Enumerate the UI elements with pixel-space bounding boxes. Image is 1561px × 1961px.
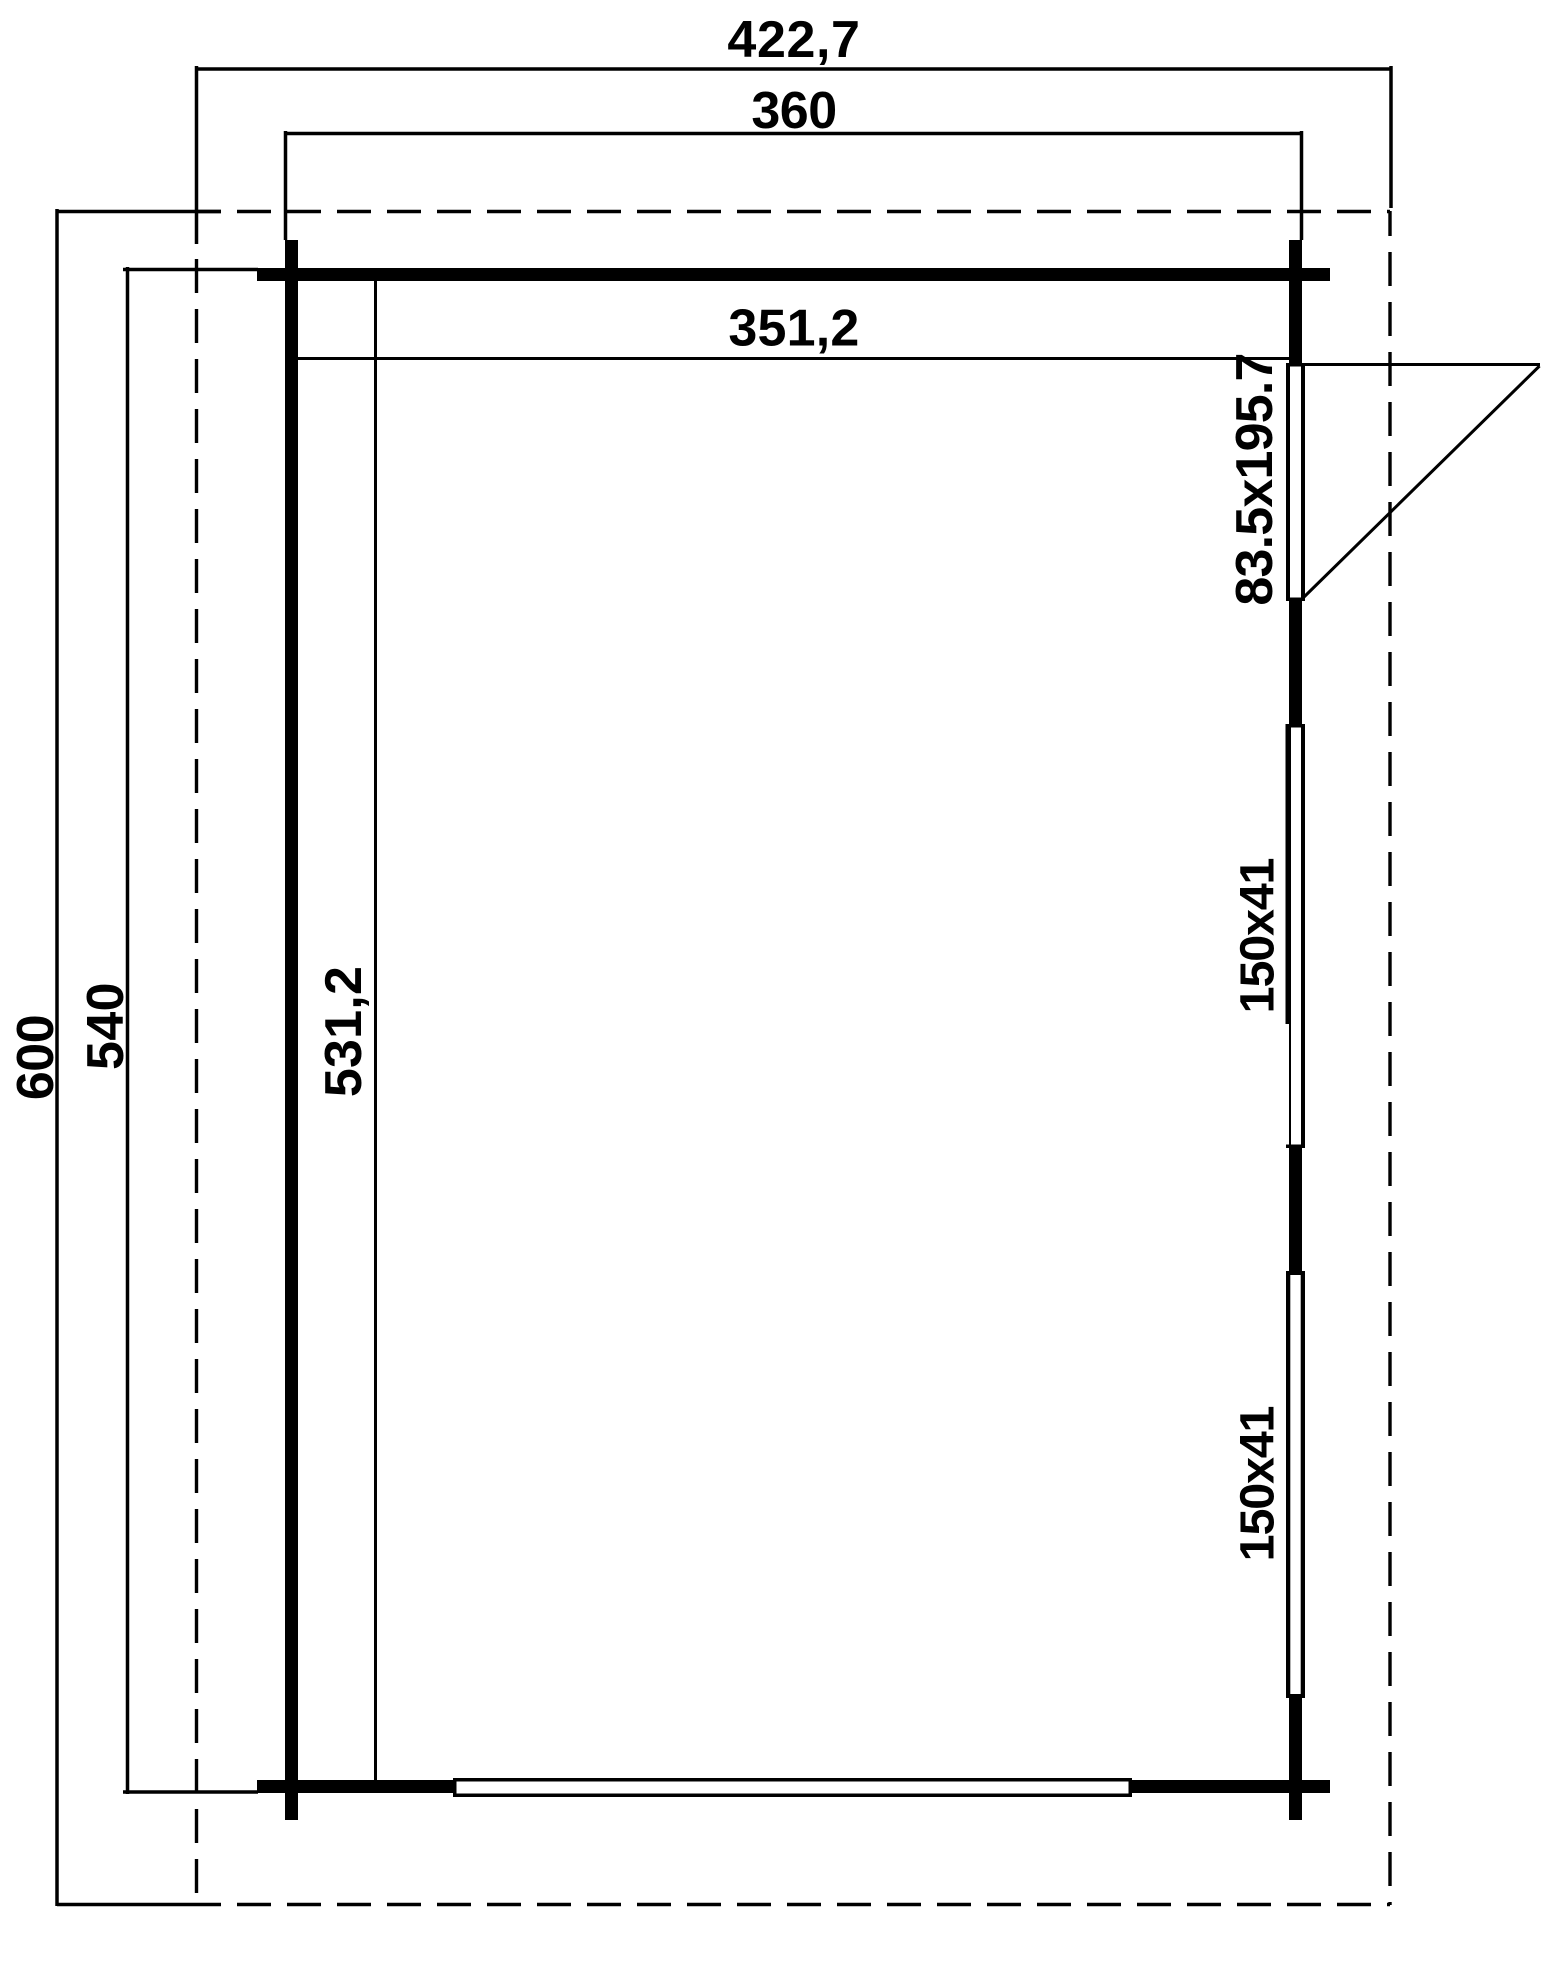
svg-text:531,2: 531,2	[315, 966, 373, 1097]
svg-text:600: 600	[7, 1015, 65, 1100]
svg-text:360: 360	[751, 82, 836, 140]
svg-text:150x41: 150x41	[1231, 1406, 1285, 1561]
svg-text:351,2: 351,2	[728, 300, 859, 358]
svg-text:540: 540	[77, 982, 135, 1070]
svg-text:422,7: 422,7	[727, 11, 860, 69]
svg-text:150x41: 150x41	[1231, 858, 1285, 1013]
svg-text:83.5x195.7: 83.5x195.7	[1226, 353, 1284, 605]
